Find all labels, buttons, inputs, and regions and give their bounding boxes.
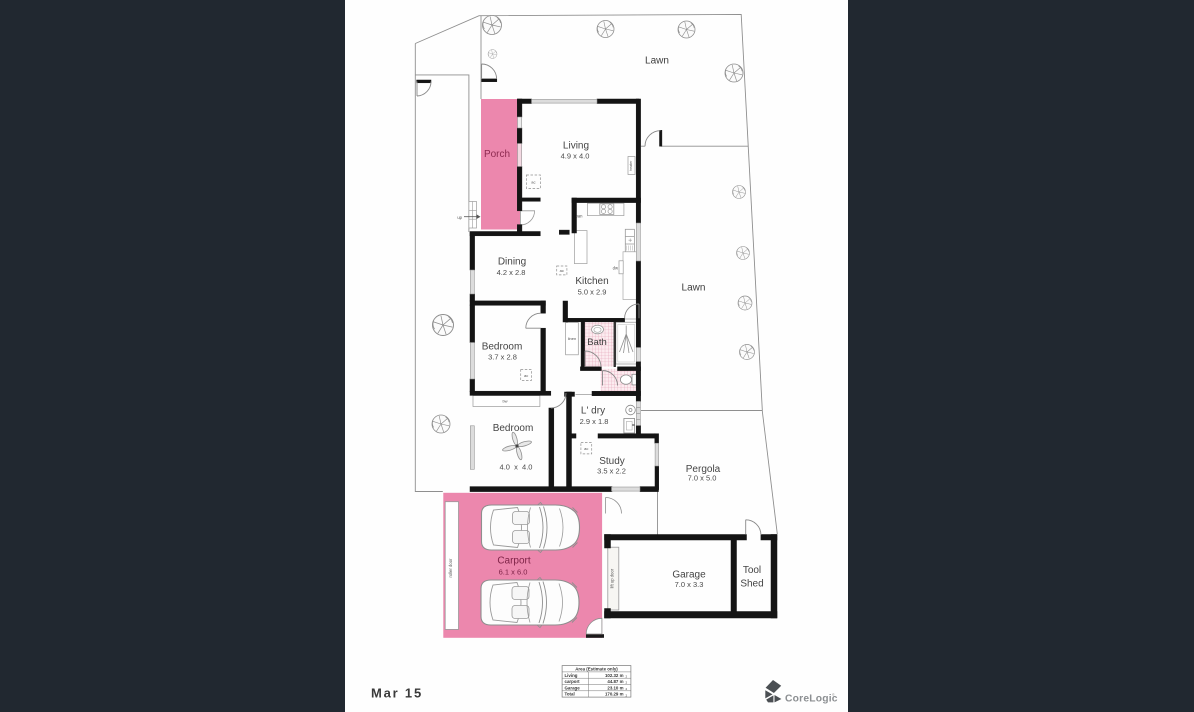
svg-text:linen: linen (568, 336, 576, 341)
svg-text:Bath: Bath (587, 337, 607, 348)
svg-text:Kitchen: Kitchen (575, 276, 608, 287)
svg-text:3.5 x 2.2: 3.5 x 2.2 (597, 466, 626, 475)
svg-text:Shed: Shed (740, 579, 763, 590)
svg-text:ac: ac (560, 268, 564, 273)
svg-text:Bedroom: Bedroom (482, 341, 523, 352)
svg-text:2.9 x 1.8: 2.9 x 1.8 (580, 417, 609, 426)
svg-text:3.7 x 2.8: 3.7 x 2.8 (488, 352, 517, 361)
svg-text:Tool: Tool (743, 565, 761, 576)
svg-text:5.0 x 2.9: 5.0 x 2.9 (578, 287, 607, 296)
svg-text:Lawn: Lawn (682, 283, 706, 294)
svg-text:44.87 m: 44.87 m (607, 679, 623, 684)
svg-text:6.1 x 6.0: 6.1 x 6.0 (499, 568, 528, 577)
svg-text:7.0 x 5.0: 7.0 x 5.0 (688, 474, 717, 483)
svg-text:Living: Living (563, 141, 589, 152)
svg-text:Dining: Dining (498, 257, 526, 268)
svg-text:CoreLogic: CoreLogic (785, 693, 838, 704)
svg-text:102.32 m: 102.32 m (605, 673, 624, 678)
svg-text:roller door: roller door (448, 558, 453, 577)
svg-text:ac: ac (531, 180, 535, 185)
svg-text:Garage: Garage (565, 685, 581, 690)
svg-text:®: ® (832, 693, 835, 697)
svg-text:4.9 x 4.0: 4.9 x 4.0 (561, 152, 590, 161)
svg-text:Carport: Carport (497, 556, 531, 567)
svg-text:up: up (457, 215, 462, 220)
svg-text:ac: ac (524, 373, 528, 378)
svg-text:Mar 15: Mar 15 (371, 685, 423, 700)
svg-text:Lawn: Lawn (645, 56, 669, 67)
svg-text:Garage: Garage (672, 570, 706, 581)
svg-text:4.0 x 4.0: 4.0 x 4.0 (500, 462, 533, 471)
svg-text:7.0 x 3.3: 7.0 x 3.3 (675, 580, 704, 589)
svg-text:Bedroom: Bedroom (493, 423, 534, 434)
svg-text:170.29 m: 170.29 m (605, 692, 624, 697)
svg-text:23.10 m: 23.10 m (607, 685, 623, 690)
svg-text:Area (Estimate only): Area (Estimate only) (575, 666, 618, 671)
svg-text:Study: Study (599, 456, 625, 467)
svg-text:lift up door: lift up door (609, 568, 614, 588)
svg-text:bw: bw (502, 399, 507, 404)
svg-text:4.2 x 2.8: 4.2 x 2.8 (497, 268, 526, 277)
svg-text:ac: ac (584, 446, 588, 451)
svg-text:carport: carport (565, 679, 581, 684)
svg-text:Total: Total (565, 692, 575, 697)
svg-text:Living: Living (565, 673, 578, 678)
svg-text:L' dry: L' dry (581, 405, 605, 416)
svg-text:heater: heater (629, 160, 633, 171)
svg-text:Porch: Porch (484, 149, 510, 160)
